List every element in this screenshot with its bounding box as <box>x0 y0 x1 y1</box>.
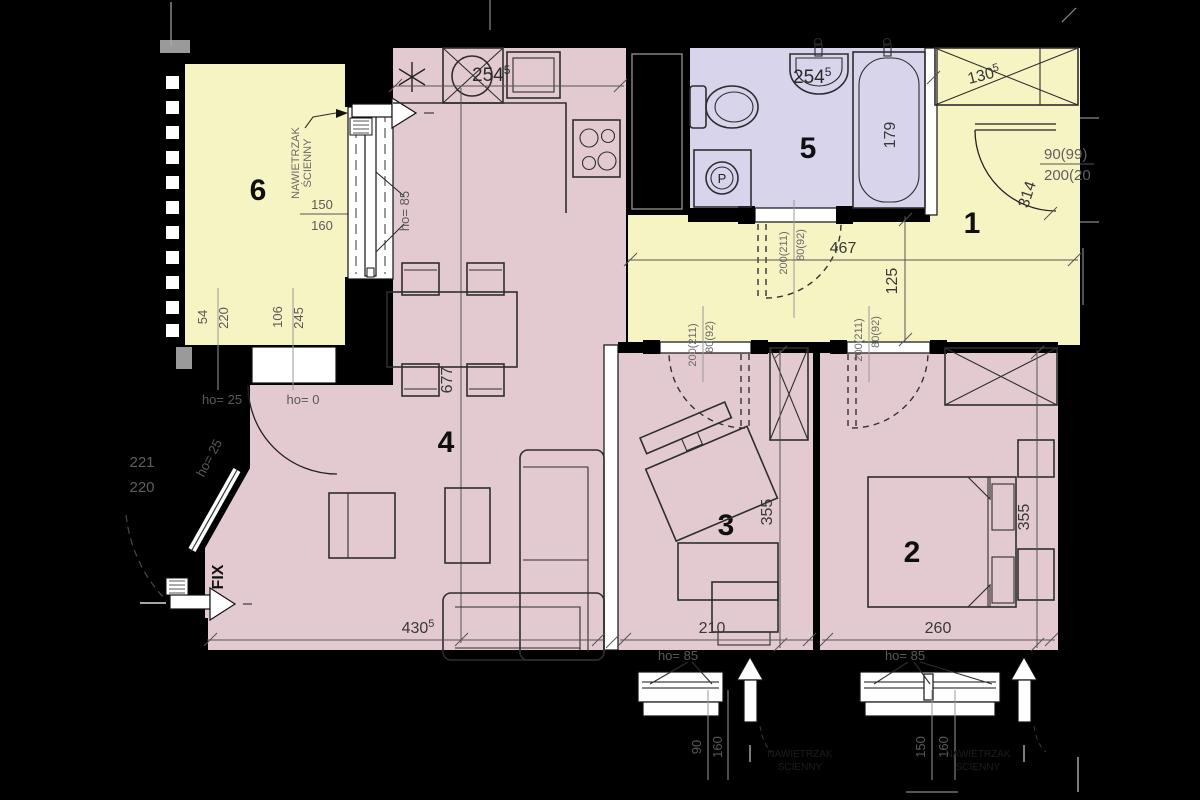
wall-vent-label-line1: NAWIETRZAK <box>290 126 302 198</box>
hall-width-dim: 467 <box>830 240 857 257</box>
room2-depth-dim: 355 <box>1016 504 1033 531</box>
room-3-area <box>618 345 815 650</box>
room2-vent-label-line2: ŚCIENNY <box>956 760 1001 773</box>
fix-window-label: FIX <box>210 564 227 589</box>
washer-p-label: P <box>718 171 727 186</box>
room-3-number: 3 <box>718 509 735 542</box>
balcony-dim-245: 245 <box>291 307 306 329</box>
room3-window-width: 90 <box>689 740 704 754</box>
balcony-dim-54: 54 <box>195 310 210 324</box>
entry-door-height-label: 200(20 <box>1044 167 1091 184</box>
wall-room4-room3 <box>604 345 618 650</box>
room2-vent-label-line1: NAWIETRZAK <box>945 749 1011 760</box>
room2-door-height-label: 200(211) <box>853 318 865 361</box>
room2-window-sill-height: ho= 85 <box>885 648 925 663</box>
bathroom-door-width-label: 80(92) <box>795 229 807 261</box>
room-4-number: 4 <box>438 426 455 459</box>
room3-vent-label-line2: ŚCIENNY <box>778 760 823 773</box>
room4-length-dim: 677 <box>439 367 456 394</box>
floor-plan: 6 NAWIETRZAK ŚCIENNY 150 160 54 220 106 … <box>0 0 1200 800</box>
room3-window-sill-height: ho= 85 <box>658 648 698 663</box>
room2-door-width-label: 80(92) <box>870 316 882 348</box>
room3-door-width-label: 80(92) <box>704 321 716 353</box>
outside-dim-221: 221 <box>129 454 154 471</box>
bathtub-length-dim: 179 <box>882 122 899 149</box>
bathroom-door-height-label: 200(211) <box>778 231 790 274</box>
room-5-number: 5 <box>800 132 817 165</box>
window-opening-label: 160 <box>311 218 333 233</box>
room3-window-opening: 160 <box>710 736 725 758</box>
hall-depth-dim: 125 <box>884 268 901 295</box>
room2-window-width: 150 <box>913 736 928 758</box>
room-6-number: 6 <box>250 174 267 207</box>
room2-width-dim: 260 <box>925 620 952 637</box>
balcony-dim-220: 220 <box>216 307 231 329</box>
lintel-height-ho25: ho= 25 <box>202 392 242 407</box>
bathroom-door-opening <box>755 208 838 222</box>
lintel-height-ho0: ho= 0 <box>287 392 320 407</box>
entry-door-width-label: 90(99) <box>1044 146 1087 163</box>
kitchen-window-sill-height: ho= 85 <box>397 191 412 231</box>
balcony-dim-106: 106 <box>270 306 285 328</box>
balcony-door-opening <box>252 347 336 383</box>
room-2-number: 2 <box>904 536 921 569</box>
wall-vent-label-line2: ŚCIENNY <box>301 138 314 188</box>
room3-vent-label-line1: NAWIETRZAK <box>767 749 833 760</box>
outside-dim-220: 220 <box>129 479 154 496</box>
room-1-number: 1 <box>964 207 981 240</box>
room3-width-dim: 210 <box>699 620 726 637</box>
room3-door-height-label: 200(211) <box>687 323 699 366</box>
window-width-label: 150 <box>311 197 333 212</box>
room3-depth-dim: 355 <box>759 499 776 526</box>
